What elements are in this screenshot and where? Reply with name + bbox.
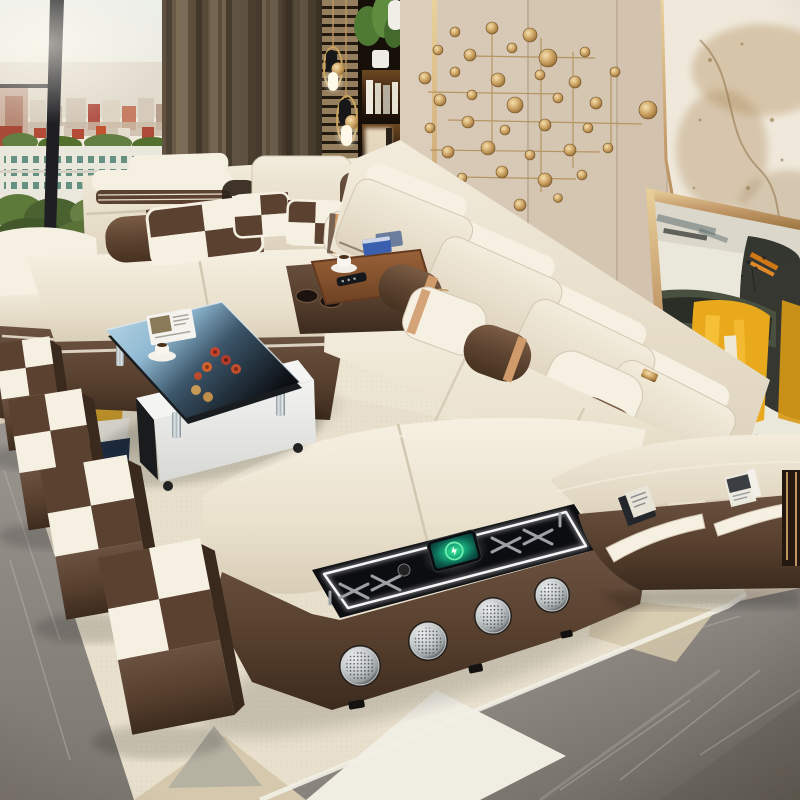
living-room-photo [0, 0, 800, 800]
vignette-overlay [0, 0, 800, 800]
